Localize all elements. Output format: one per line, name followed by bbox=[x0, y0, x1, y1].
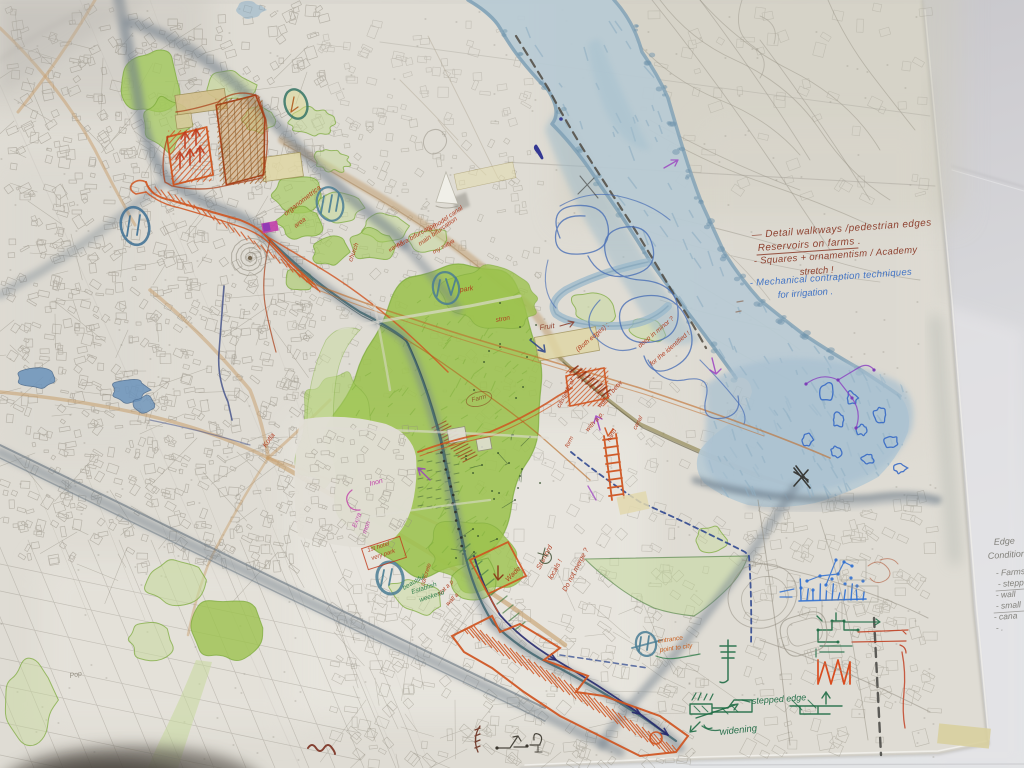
svg-text:- cana: - cana bbox=[993, 610, 1018, 622]
svg-text:n: n bbox=[196, 147, 200, 154]
svg-text:- stepp: - stepp bbox=[997, 577, 1024, 589]
svg-text:- wall: - wall bbox=[995, 589, 1017, 600]
svg-text:- small: - small bbox=[995, 599, 1022, 611]
svg-text:Edge: Edge bbox=[993, 536, 1015, 547]
svg-text:- Farms: - Farms bbox=[995, 566, 1024, 578]
svg-text:- .: - . bbox=[995, 622, 1003, 633]
